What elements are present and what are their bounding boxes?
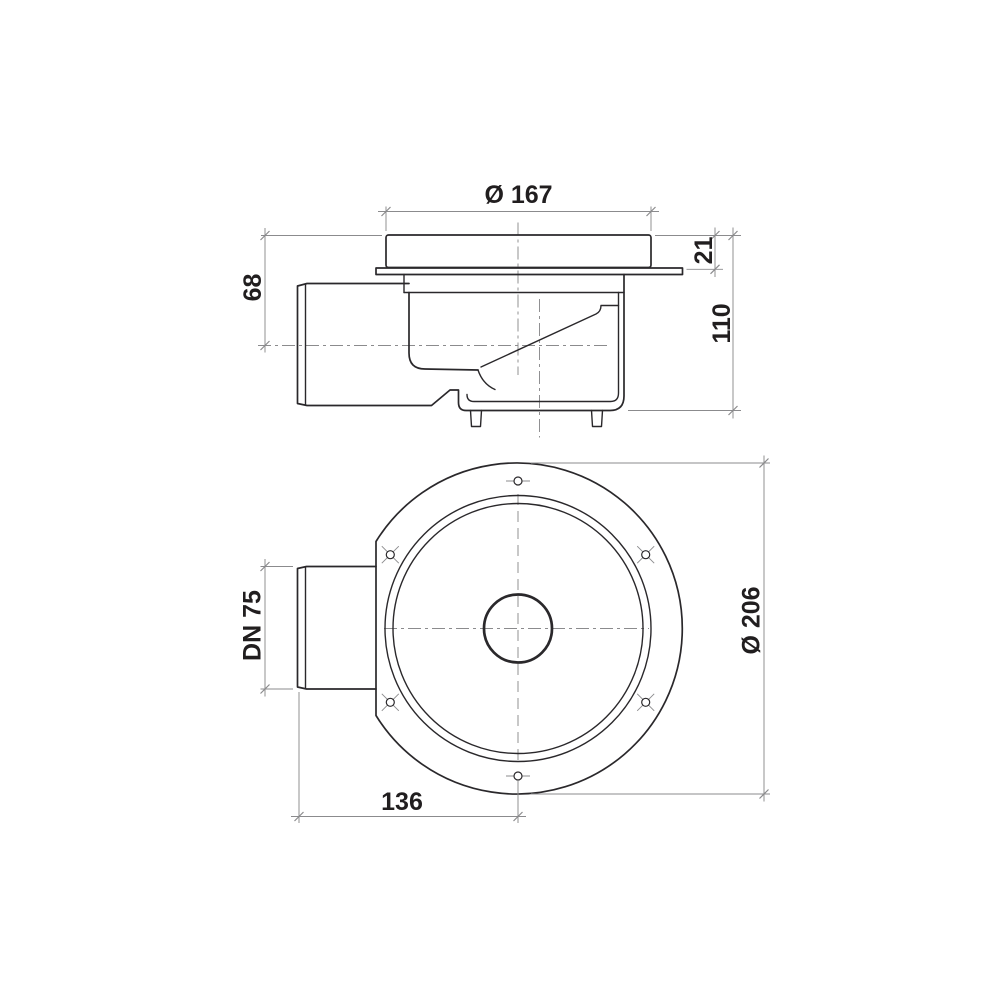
dim-label-cover-diameter: Ø 167 bbox=[484, 181, 552, 209]
internal-baffle bbox=[481, 306, 619, 368]
inner-wall-line bbox=[467, 293, 619, 402]
dim-label-flange-diameter: Ø 206 bbox=[738, 586, 766, 654]
dimension-cover-diameter: Ø 167 bbox=[378, 181, 659, 231]
bolt-hole bbox=[514, 772, 522, 780]
bolt-hole bbox=[642, 551, 650, 559]
side-view: Ø 167 21 110 68 bbox=[239, 181, 741, 438]
flange-plate-outline bbox=[376, 268, 683, 275]
drawing-canvas: Ø 167 21 110 68 bbox=[0, 0, 1000, 1000]
inlet-pipe-outline bbox=[298, 567, 377, 690]
bolt-hole bbox=[642, 698, 650, 706]
body-outline bbox=[298, 275, 625, 411]
cover-outline bbox=[386, 235, 651, 268]
top-view: DN 75 Ø 206 136 bbox=[239, 456, 771, 824]
dim-label-inlet-center-height: 68 bbox=[239, 274, 267, 302]
support-leg-left bbox=[471, 411, 482, 427]
dimension-inlet-center-height: 68 bbox=[239, 228, 382, 353]
bolt-hole bbox=[386, 698, 394, 706]
bowl-left-wall bbox=[409, 293, 478, 371]
bolt-hole bbox=[514, 477, 522, 485]
dim-label-total-height: 110 bbox=[708, 303, 736, 343]
bolt-hole bbox=[386, 551, 394, 559]
technical-drawing: Ø 167 21 110 68 bbox=[0, 0, 1000, 1000]
outlet-funnel-curve bbox=[478, 370, 495, 390]
dim-label-inlet-length: 136 bbox=[381, 788, 423, 816]
support-leg-right bbox=[592, 411, 603, 427]
dim-label-cover-height: 21 bbox=[690, 237, 718, 265]
dimension-cover-height: 21 bbox=[655, 228, 741, 278]
dimension-inlet-pipe: DN 75 bbox=[239, 559, 294, 697]
dim-label-inlet-pipe: DN 75 bbox=[239, 590, 267, 661]
dimension-inlet-length: 136 bbox=[291, 692, 526, 823]
dimension-total-height: 110 bbox=[628, 228, 741, 419]
